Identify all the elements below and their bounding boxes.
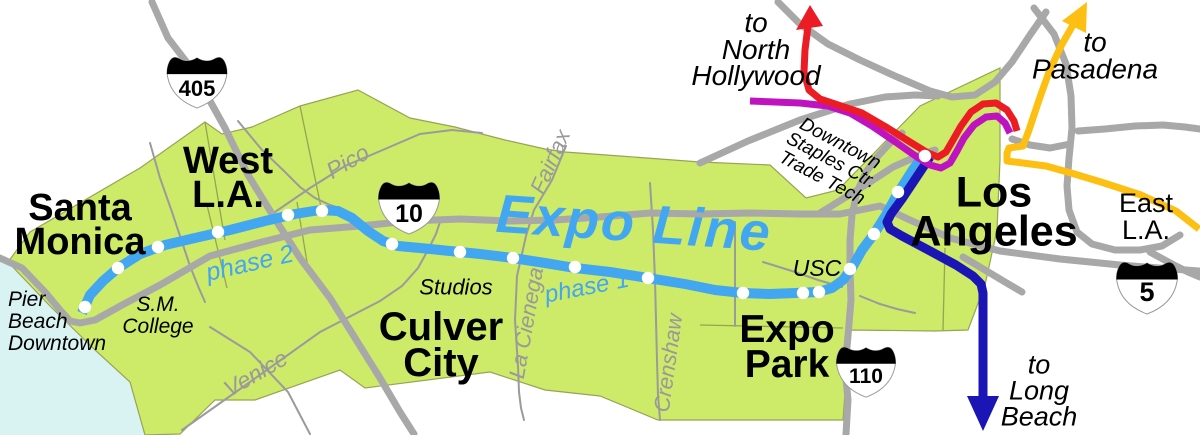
label-expo-park: Expo Park [739,312,834,382]
long-beach-arrow-icon [967,396,999,431]
label-los-angeles: Los Angeles [910,173,1077,250]
station-dot [316,205,328,217]
station-dot [112,262,124,274]
label-to-north-hollywood: to North Hollywood [691,10,820,90]
label-usc: USC [793,258,842,280]
label-to-pasadena: to Pasadena [1032,29,1158,82]
station-dot [507,252,519,264]
freeway-shield-5: 5 [1115,256,1179,318]
shield-number-5: 5 [1115,277,1179,308]
station-dot [152,241,164,253]
label-studios: Studios [419,278,492,299]
freeway-shield-110: 110 [835,341,897,401]
shield-number-10: 10 [376,200,442,229]
expo-line-map: Expo Line Santa Monica West L.A. Culver … [0,0,1200,435]
station-dot [868,228,880,240]
station-dot [919,150,931,162]
label-east-la: East L.A. [1119,190,1173,244]
station-dot [844,263,856,275]
label-west-la: West L.A. [183,144,273,212]
station-dot [797,287,809,299]
station-dot [737,287,749,299]
label-sm-college: S.M. College [122,294,193,338]
station-dot [454,246,466,258]
freeway-shield-10: 10 [376,178,442,236]
label-to-long-beach: to Long Beach [1001,352,1078,431]
shield-number-110: 110 [835,365,897,389]
station-dot [813,286,825,298]
station-dot [642,272,654,284]
station-dot [282,209,294,221]
shield-number-405: 405 [163,76,231,102]
station-dot [386,238,398,250]
label-culver-city: Culver City [379,309,504,381]
label-santa-monica: Santa Monica [15,191,146,259]
station-dot [212,226,224,238]
freeway-shield-405: 405 [163,53,231,110]
station-dot [569,261,581,273]
station-dot [892,186,904,198]
label-pier-beach-downtown: Pier Beach Downtown [8,289,106,355]
